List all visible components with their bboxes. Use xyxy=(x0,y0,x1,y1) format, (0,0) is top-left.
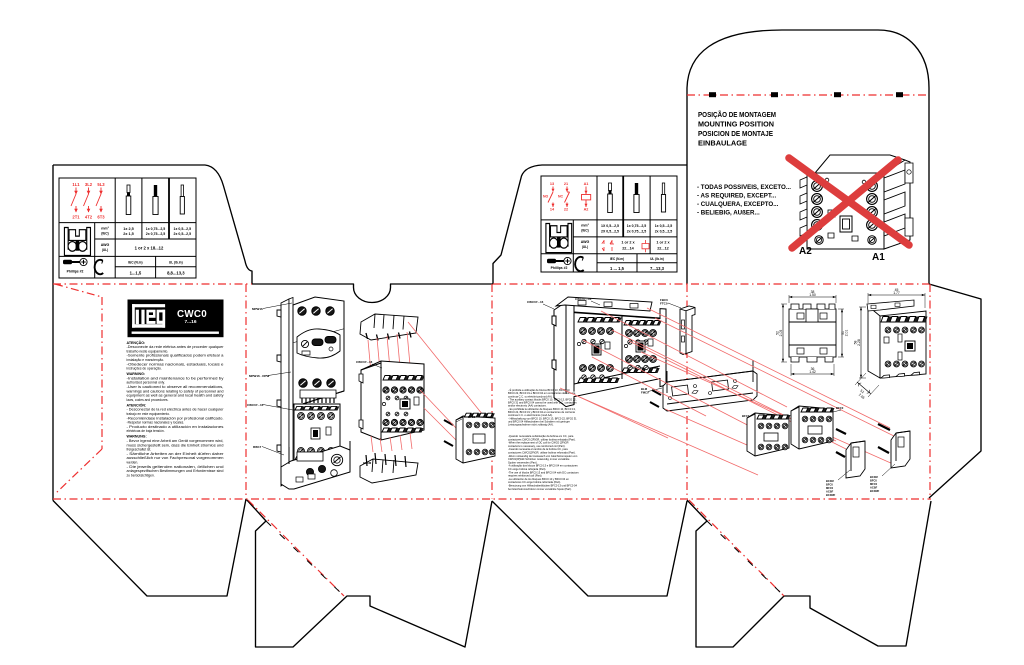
svg-text:Phillips #2: Phillips #2 xyxy=(67,270,84,274)
svg-text:NO: NO xyxy=(543,195,549,199)
svg-text:ACBF: ACBF xyxy=(826,490,834,494)
svg-text:1x 2,5: 1x 2,5 xyxy=(123,227,134,231)
svg-text:BFC0: BFC0 xyxy=(826,483,833,487)
svg-text:22...14: 22...14 xyxy=(622,247,634,251)
svg-text:NC: NC xyxy=(558,195,564,199)
svg-text:UL (lb.in): UL (lb.in) xyxy=(169,260,183,264)
svg-text:BCXMF: BCXMF xyxy=(870,489,880,493)
svg-text:- TODAS POSSIVEIS, EXCETO...: - TODAS POSSIVEIS, EXCETO... xyxy=(697,184,791,191)
svg-text:MFC0: MFC0 xyxy=(826,486,834,490)
svg-text:BCXM: BCXM xyxy=(870,475,878,479)
svg-text:MPW16 - DPW: MPW16 - DPW xyxy=(249,374,270,378)
svg-text:zu berücksichtigen.: zu berücksichtigen. xyxy=(127,473,155,477)
svg-text:FMC0: FMC0 xyxy=(641,391,649,395)
svg-text:CWC07...16: CWC07...16 xyxy=(356,360,373,364)
svg-text:8,8...13,3: 8,8...13,3 xyxy=(167,271,185,276)
svg-text:- CUALQUERA, EXCEPTO...: - CUALQUERA, EXCEPTO... xyxy=(697,201,779,208)
svg-text:MPW16: MPW16 xyxy=(252,307,263,311)
svg-text:21: 21 xyxy=(564,182,568,186)
svg-text:1x 0,5...2,5: 1x 0,5...2,5 xyxy=(655,224,673,228)
svg-text:BFC0: BFC0 xyxy=(468,415,476,419)
svg-text:RW17: RW17 xyxy=(253,445,262,449)
svg-text:5L3: 5L3 xyxy=(97,182,105,187)
svg-text:bei Gleichstromschützen immer: bei Gleichstromschützen immer verstärkte… xyxy=(508,487,572,491)
svg-text:FTC0: FTC0 xyxy=(660,302,668,306)
svg-text:1X 0,5...2,5: 1X 0,5...2,5 xyxy=(601,224,619,228)
svg-text:3L2: 3L2 xyxy=(85,182,93,187)
svg-text:AWG: AWG xyxy=(581,240,590,244)
svg-text:Phillips #2: Phillips #2 xyxy=(551,266,568,270)
svg-text:BFC0: BFC0 xyxy=(836,406,844,410)
svg-text:CWC07...16: CWC07...16 xyxy=(527,300,544,304)
svg-text:1.77: 1.77 xyxy=(893,291,900,295)
svg-text:A1: A1 xyxy=(872,252,885,263)
svg-text:Leistungsaufnahme nicht zuläss: Leistungsaufnahme nicht zulässig (AA). xyxy=(508,423,554,427)
svg-text:7...13,3: 7...13,3 xyxy=(650,266,665,271)
svg-text:2x 0,5...2,5: 2x 0,5...2,5 xyxy=(655,230,673,234)
svg-text:CWC07...16: CWC07...16 xyxy=(247,403,264,407)
svg-text:BFC0: BFC0 xyxy=(870,479,877,483)
svg-text:1x 0,75...2,5: 1x 0,75...2,5 xyxy=(146,227,166,231)
svg-text:1 or 2 x: 1 or 2 x xyxy=(621,241,635,245)
svg-text:1L1: 1L1 xyxy=(72,182,80,187)
svg-text:(IEC): (IEC) xyxy=(101,232,108,236)
svg-text:POSICION DE MONTAJE: POSICION DE MONTAJE xyxy=(698,129,773,138)
svg-text:2x 0,5...2,5: 2x 0,5...2,5 xyxy=(174,232,192,236)
svg-text:1...1,5: 1...1,5 xyxy=(130,271,142,276)
svg-text:2x 0,75...2,5: 2x 0,75...2,5 xyxy=(627,230,647,234)
svg-text:2.05: 2.05 xyxy=(779,330,783,337)
svg-text:ausschließlich nur von Fachper: ausschließlich nur von Fachpersonal vorg… xyxy=(127,456,224,460)
svg-text:22...12: 22...12 xyxy=(657,247,669,251)
svg-text:BCXMF: BCXMF xyxy=(826,493,836,497)
svg-text:6T3: 6T3 xyxy=(97,215,105,220)
svg-text:MOUNTING POSITION: MOUNTING POSITION xyxy=(698,120,774,129)
svg-text:4T2: 4T2 xyxy=(85,215,93,220)
svg-text:2x 0,75...2,5: 2x 0,75...2,5 xyxy=(146,232,166,236)
svg-text:IEC (N.m): IEC (N.m) xyxy=(128,260,142,264)
svg-text:2T1: 2T1 xyxy=(72,215,80,220)
svg-text:(UL): (UL) xyxy=(582,245,588,249)
svg-text:MFC0: MFC0 xyxy=(870,482,878,486)
svg-text:1 or 2 x 18...12: 1 or 2 x 18...12 xyxy=(135,246,164,251)
svg-text:ATENCIÓN:: ATENCIÓN: xyxy=(127,402,147,407)
svg-text:1 or 2 x: 1 or 2 x xyxy=(656,241,670,245)
svg-text:A2: A2 xyxy=(584,208,589,212)
svg-text:BCXM: BCXM xyxy=(826,479,834,483)
svg-text:laws, codes and procedures.: laws, codes and procedures. xyxy=(127,398,169,402)
svg-text:7...16: 7...16 xyxy=(184,319,196,325)
svg-text:ATENÇÃO:: ATENÇÃO: xyxy=(127,340,146,345)
svg-text:1x 0,5...2,5: 1x 0,5...2,5 xyxy=(174,227,192,231)
svg-text:22: 22 xyxy=(564,208,568,212)
svg-text:2x 1,5: 2x 1,5 xyxy=(123,232,134,236)
svg-text:mm²: mm² xyxy=(581,224,589,228)
svg-text:- BELIEBIG, AUßER...: - BELIEBIG, AUßER... xyxy=(697,210,760,217)
svg-text:(UL): (UL) xyxy=(102,248,108,252)
svg-text:A1: A1 xyxy=(584,182,589,186)
svg-text:BFC0: BFC0 xyxy=(742,414,750,418)
svg-text:CWC0: CWC0 xyxy=(177,309,207,320)
svg-text:(IEC): (IEC) xyxy=(581,229,588,233)
svg-text:- AS REQUIRED, EXCEPT...: - AS REQUIRED, EXCEPT... xyxy=(697,193,776,200)
svg-text:mm²: mm² xyxy=(101,227,109,231)
svg-text:UL (lb.in): UL (lb.in) xyxy=(650,257,664,261)
svg-text:1x 0,75...2,5: 1x 0,75...2,5 xyxy=(627,224,647,228)
svg-text:BCXM: BCXM xyxy=(363,461,372,465)
svg-text:POSIÇÃO DE MONTAGEM: POSIÇÃO DE MONTAGEM xyxy=(698,110,776,119)
svg-text:1 ... 1,5: 1 ... 1,5 xyxy=(610,266,625,271)
svg-text:EINBAULAGE: EINBAULAGE xyxy=(698,139,747,148)
svg-text:2.28: 2.28 xyxy=(857,339,861,346)
svg-text:CWC07...16: CWC07...16 xyxy=(575,297,592,301)
svg-text:ACBF: ACBF xyxy=(870,486,878,490)
svg-text:2.01: 2.01 xyxy=(844,330,848,337)
svg-text:13: 13 xyxy=(550,182,554,186)
svg-text:A2: A2 xyxy=(799,246,812,257)
svg-text:IEC (N.m): IEC (N.m) xyxy=(610,257,624,261)
svg-text:1.42: 1.42 xyxy=(809,370,816,374)
svg-text:AWG: AWG xyxy=(101,243,110,247)
svg-text:2X 0,5...2,5: 2X 0,5...2,5 xyxy=(601,230,619,234)
svg-text:instruções de operação.: instruções de operação. xyxy=(127,367,162,371)
svg-text:eléctricas de baja tensión.: eléctricas de baja tensión. xyxy=(127,429,165,433)
svg-text:1.50: 1.50 xyxy=(809,293,816,297)
